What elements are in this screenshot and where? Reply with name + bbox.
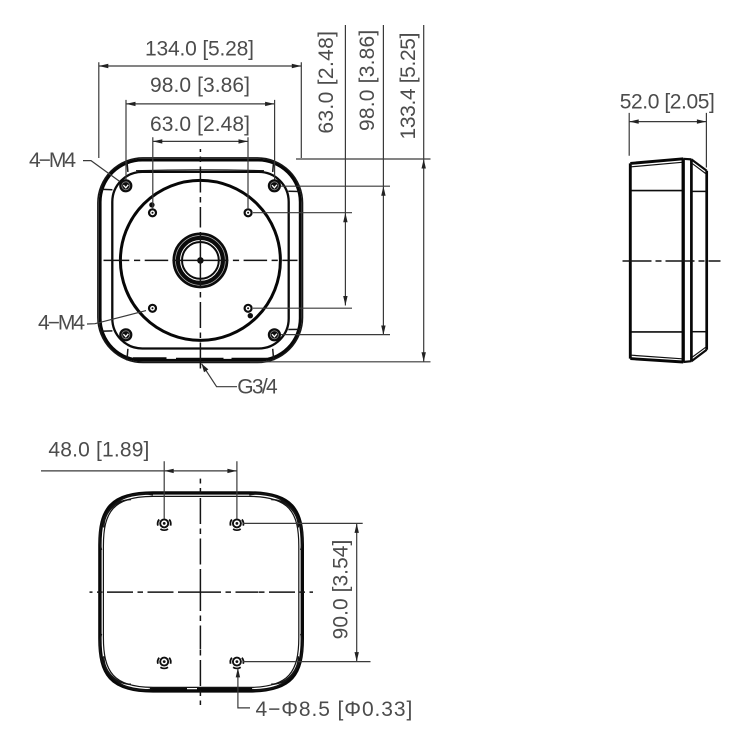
svg-text:48.0 [1.89]: 48.0 [1.89] — [48, 438, 149, 461]
svg-text:63.0 [2.48]: 63.0 [2.48] — [150, 113, 250, 136]
svg-text:63.0 [2.48]: 63.0 [2.48] — [315, 31, 338, 134]
svg-text:52.0 [2.05]: 52.0 [2.05] — [620, 90, 715, 113]
svg-text:4−M4: 4−M4 — [38, 311, 85, 334]
svg-text:133.4 [5.25]: 133.4 [5.25] — [397, 33, 420, 140]
svg-text:G3/4: G3/4 — [237, 375, 278, 398]
svg-text:90.0 [3.54]: 90.0 [3.54] — [329, 540, 352, 640]
svg-text:4−M4: 4−M4 — [29, 149, 76, 172]
svg-text:98.0 [3.86]: 98.0 [3.86] — [356, 30, 379, 131]
svg-text:4−Φ8.5 [Φ0.33]: 4−Φ8.5 [Φ0.33] — [256, 698, 413, 721]
svg-text:98.0 [3.86]: 98.0 [3.86] — [150, 74, 250, 97]
svg-text:134.0 [5.28]: 134.0 [5.28] — [145, 37, 254, 60]
